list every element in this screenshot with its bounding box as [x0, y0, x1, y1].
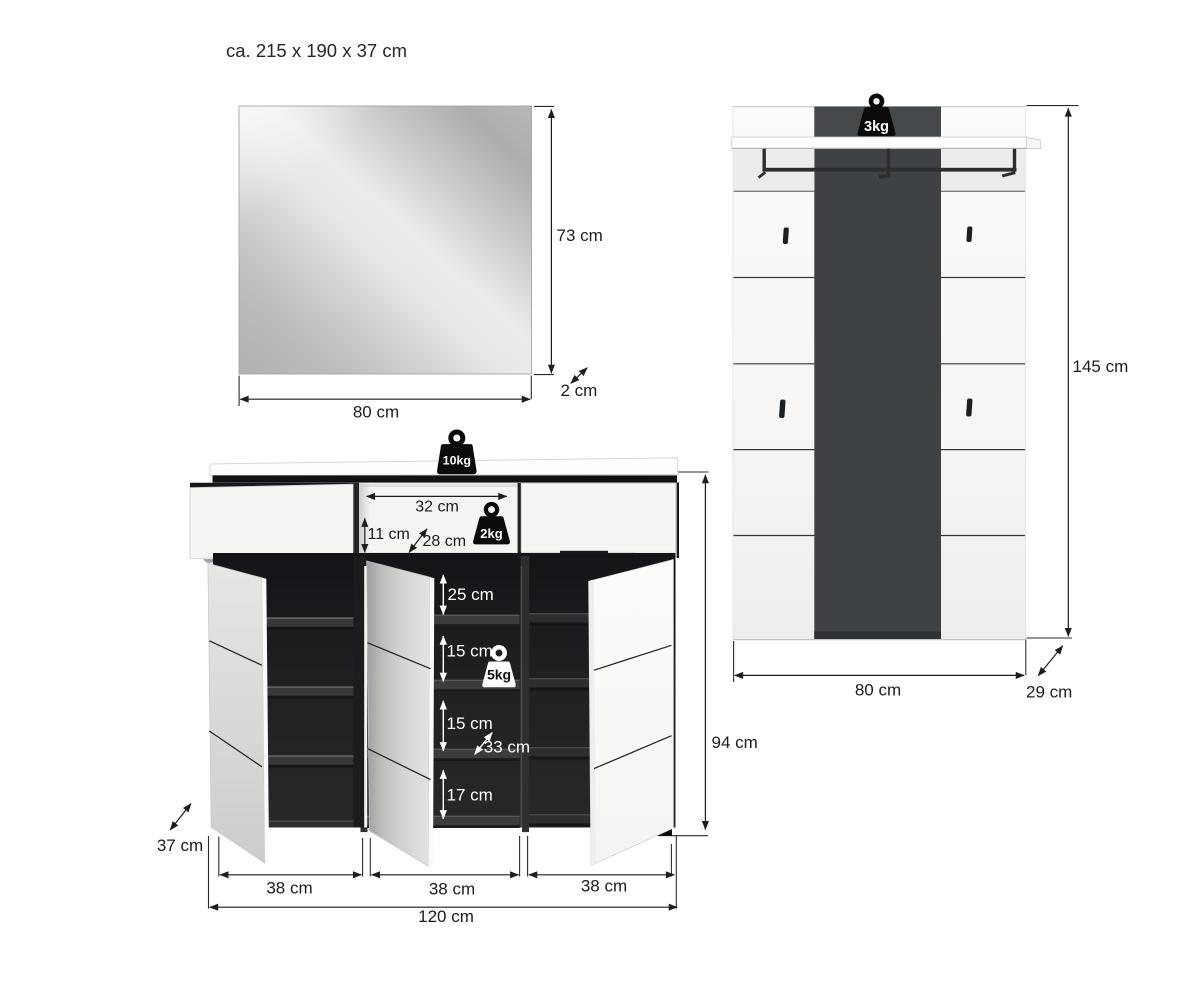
svg-text:28 cm: 28 cm: [423, 533, 467, 550]
svg-text:2kg: 2kg: [480, 526, 502, 541]
svg-text:120 cm: 120 cm: [418, 907, 474, 926]
svg-text:80 cm: 80 cm: [855, 681, 901, 700]
svg-text:38 cm: 38 cm: [429, 879, 475, 898]
svg-text:25 cm: 25 cm: [448, 585, 494, 604]
svg-text:73 cm: 73 cm: [557, 226, 603, 245]
svg-text:94 cm: 94 cm: [712, 733, 758, 752]
svg-text:15 cm: 15 cm: [447, 641, 493, 660]
svg-text:5kg: 5kg: [487, 666, 511, 682]
svg-text:10kg: 10kg: [443, 454, 471, 468]
svg-text:38 cm: 38 cm: [581, 876, 627, 895]
svg-text:38 cm: 38 cm: [266, 878, 312, 897]
svg-text:80 cm: 80 cm: [353, 403, 399, 422]
svg-text:17 cm: 17 cm: [447, 785, 493, 804]
svg-text:11 cm: 11 cm: [368, 526, 410, 543]
svg-text:33 cm: 33 cm: [484, 737, 530, 756]
svg-text:32 cm: 32 cm: [415, 499, 459, 516]
svg-text:ca. 215 x 190 x 37 cm: ca. 215 x 190 x 37 cm: [226, 40, 407, 61]
svg-text:2 cm: 2 cm: [561, 381, 598, 400]
svg-text:15 cm: 15 cm: [447, 714, 493, 733]
svg-text:3kg: 3kg: [864, 119, 889, 135]
svg-text:145 cm: 145 cm: [1073, 357, 1129, 376]
svg-text:37 cm: 37 cm: [157, 836, 203, 855]
svg-text:29 cm: 29 cm: [1026, 683, 1072, 702]
